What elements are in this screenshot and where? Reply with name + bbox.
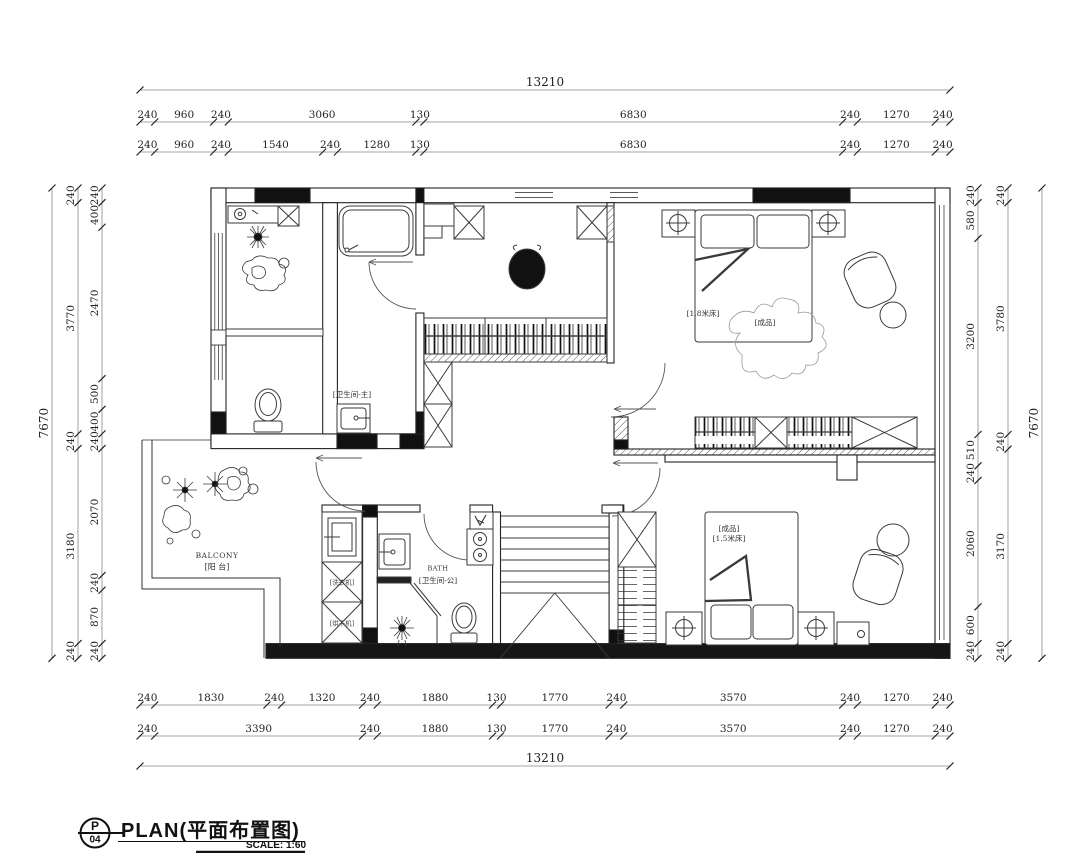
balcony-parapet [142,440,280,658]
dim-label: 7670 [37,408,51,439]
dim-string-left-mid: 24037702403180240 [65,185,82,662]
dim-label: 2070 [89,499,101,526]
dim-label: 240 [933,139,953,151]
dim-label: 240 [360,692,380,704]
dim-label: 240 [840,109,860,121]
dim-label: 1270 [883,723,910,735]
dim-label: 960 [174,109,194,121]
wall-black-top-3 [753,188,850,203]
dim-label: 240 [89,185,101,205]
dim-label: 580 [965,210,977,230]
side-table-bed2 [877,524,909,556]
dim-string-right-total: 7670 [1027,185,1046,662]
furniture [162,204,917,658]
toilet-powder [254,389,282,432]
dim-label: 240 [933,723,953,735]
nightstand-master-left [662,210,695,237]
closet-top-boxes [424,204,614,242]
dim-label: 240 [995,641,1007,661]
double-basin-unit [467,529,493,565]
dim-label: 240 [264,692,284,704]
dim-label: 240 [360,723,380,735]
starburst-icon [390,616,414,640]
closet-left-column [424,362,452,447]
dim-label: 1320 [309,692,336,704]
dim-label: 3770 [65,305,77,332]
dim-string-bottom-total: 13210 [137,751,954,770]
dim-label: 6830 [620,109,647,121]
starburst-icon [203,472,227,496]
side-table-master [880,302,906,328]
dim-label: 870 [89,607,101,627]
dim-label: 2470 [89,290,101,317]
dim-label: 1280 [363,139,390,151]
dim-label: 240 [89,641,101,661]
floor-plan-canvas: 1321024096024030601306830240127024024096… [0,0,1080,853]
dim-label: 240 [840,723,860,735]
dim-label: 240 [65,431,77,451]
dim-label: 240 [137,723,157,735]
dim-label: 240 [965,641,977,661]
plants-balcony [162,467,258,544]
dim-label: 240 [965,185,977,205]
dim-label: 240 [965,463,977,483]
dim-label: 130 [410,109,430,121]
dim-label: 1880 [422,692,449,704]
dim-label: 2060 [965,530,977,557]
wardrobe-master-row [695,417,917,448]
vanity-public-bath [379,534,410,569]
toilet-public-bath [451,603,477,643]
dim-label: 1270 [883,139,910,151]
nightstand-master-right [812,210,845,237]
laundry-cabinet [322,512,362,562]
label-master-bed-size: [1.8米床] [687,310,720,318]
dim-string-top-row3: 2409602401540240128013068302401270240 [137,139,954,156]
label-balcony: [阳 台] [205,564,230,573]
dim-label: 500 [89,384,101,404]
dim-string-bottom-row1: 2401830240132024018801301770240357024012… [137,692,954,709]
wall-black-top-1 [255,188,310,203]
dim-label: 240 [89,573,101,593]
wall-bath-hall-b [416,313,424,412]
label-washer: [洗衣机] [330,579,355,586]
wall-black-top-2 [416,188,424,203]
floor-drain [470,512,493,529]
shower-corner [410,583,441,643]
dim-label: 3200 [965,323,977,350]
stairs [501,516,610,658]
dim-label: 240 [211,109,231,121]
dim-label: 1880 [422,723,449,735]
dim-label: 240 [211,139,231,151]
label-master-bath: [卫生间-主] [333,391,371,399]
door-arc-master-bath [369,262,416,309]
dim-label: 7670 [1027,408,1041,439]
wall-bath-top-a [377,505,420,512]
starburst-icon [247,226,269,248]
dim-label: 13210 [526,751,564,765]
dim-label: 13210 [526,75,564,89]
dim-label: 240 [933,109,953,121]
page-title: PLAN(平面布置图) [121,814,300,843]
dim-label: 240 [137,692,157,704]
dim-label: 240 [995,185,1007,205]
dim-label: 510 [965,440,977,460]
dim-label: 1540 [262,139,289,151]
dim-label: 240 [137,109,157,121]
bathtub [339,206,413,256]
wall-bed2-top [665,455,935,462]
dim-label: 240 [137,139,157,151]
dim-label: 1770 [541,723,568,735]
dim-string-top-row2: 240960240306013068302401270240 [137,109,954,126]
sheet-letter: P [91,819,99,833]
dim-label: 240 [606,723,626,735]
shaft-column-1 [278,206,299,226]
shower-divider [377,577,411,583]
dim-label: 3180 [65,533,77,560]
dim-label: 1770 [541,692,568,704]
dim-label: 400 [89,412,101,432]
dim-label: 240 [65,641,77,661]
wall-stub-bed2 [837,455,857,480]
scale-note: SCALE: 1:60 [196,840,306,851]
dim-label: 3390 [245,723,272,735]
label-public-bath: [卫生间-公] [419,577,457,585]
dim-label: 3570 [720,723,747,735]
armchair-master [839,247,900,312]
dim-label: 3170 [995,533,1007,560]
dim-label: 130 [410,139,430,151]
dim-label: 960 [174,139,194,151]
wall-bath-hall-a [416,203,424,255]
sheet-number: 04 [89,835,100,846]
partition-powder [226,329,323,336]
dim-label: 3570 [720,692,747,704]
dim-label: 240 [320,139,340,151]
label-public-bath-en: BATH [427,565,448,572]
label-dryer: [烘干机] [330,620,355,627]
dim-label: 3780 [995,305,1007,332]
plant-powder [242,226,289,291]
wall-powder-bath [323,203,338,434]
vanity-master-bath [337,404,370,433]
dim-label: 1270 [883,692,910,704]
wall-mid-left [211,434,424,449]
dim-label: 1830 [197,692,224,704]
door-arc-balcony [316,462,365,511]
label-balcony-en: BALCONY [196,552,239,560]
dim-label: 240 [89,431,101,451]
wall-hatch-door [614,417,628,440]
cabinet-bed2 [837,622,869,645]
dim-label: 3060 [309,109,336,121]
wall-laundry-bath [363,505,378,644]
dim-label: 240 [840,692,860,704]
nightstand-bed2-right [798,612,834,645]
wall-bath-top-b [470,505,493,512]
dim-label: 6830 [620,139,647,151]
plant-public-bath [390,616,414,646]
label-bed2-size: [1.5米床] [713,535,746,543]
wall-right [935,188,950,658]
label-bed2-note: [成品] [719,525,740,533]
dim-label: 130 [487,723,507,735]
bed-master [695,210,812,342]
dim-label: 1270 [883,109,910,121]
wardrobe-closet-row [424,318,607,362]
dim-string-right-inner: 24058032005102402060600240 [965,185,982,662]
washbasin-counter [228,206,278,223]
dim-label: 240 [65,185,77,205]
wall-bath-stairs [493,512,501,644]
dim-label: 600 [965,615,977,635]
wardrobe-bed2-column [618,512,656,643]
dim-label: 130 [487,692,507,704]
wall-hatch-right [614,449,935,455]
dim-string-top-total: 13210 [137,75,954,94]
dim-label: 240 [933,692,953,704]
dim-label: 240 [840,139,860,151]
dim-string-left-total: 7670 [37,185,56,662]
stool [509,245,545,289]
nightstand-bed2-left [666,612,702,645]
dim-string-right-mid: 24037802403170240 [995,185,1012,662]
dim-label: 240 [995,432,1007,452]
dim-label: 400 [89,205,101,225]
dim-string-left-inner: 24040024705004002402070240870240 [89,185,106,662]
dim-string-bottom-row2: 24033902401880130177024035702401270240 [137,723,954,740]
label-master-bed-note: [成品] [755,319,776,327]
floor-plan-sheet: 1321024096024030601306830240127024024096… [0,0,1080,853]
starburst-icon [173,478,197,502]
dim-label: 240 [606,692,626,704]
door-arc-public-bath [424,514,470,560]
